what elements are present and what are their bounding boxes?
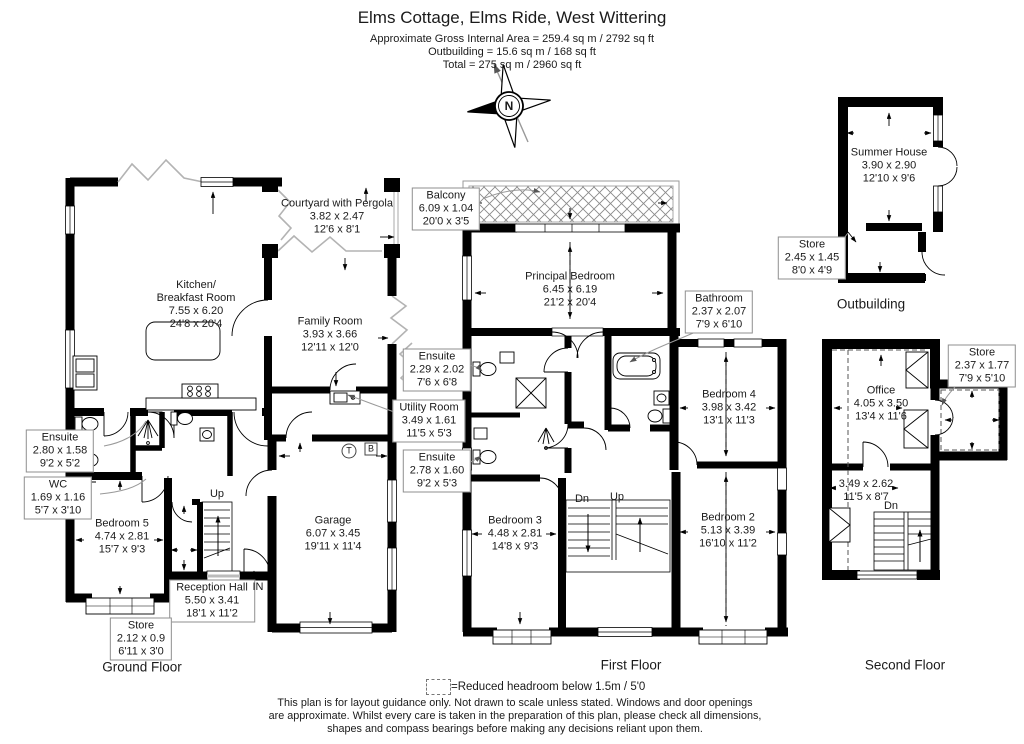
reduced-headroom-legend: =Reduced headroom below 1.5m / 5'0 <box>451 681 645 693</box>
reduced-headroom-swatch <box>426 679 451 695</box>
balcony-hatch <box>469 186 673 222</box>
stairs-dn-label-second: Dn <box>884 500 898 512</box>
tank-symbol: T <box>342 444 357 459</box>
room-label-summer-house: Summer House 3.90 x 2.90 12'10 x 9'6 <box>851 147 927 186</box>
room-label-sf-store: Store 2.37 x 1.77 7'9 x 5'10 <box>948 345 1016 388</box>
disclaimer-line-3: shapes and compass bearings before makin… <box>327 723 703 736</box>
room-label-family-room: Family Room 3.93 x 3.66 12'11 x 12'0 <box>298 316 363 355</box>
outbuilding-drawing <box>836 97 957 283</box>
second-floor-title: Second Floor <box>865 658 945 673</box>
outbuilding-title: Outbuilding <box>837 297 905 312</box>
room-label-bedroom5: Bedroom 5 4.74 x 2.81 15'7 x 9'3 <box>95 518 149 557</box>
stairs-up-label-first: Up <box>610 491 624 503</box>
second-stairs <box>874 512 935 570</box>
room-label-ob-store: Store 2.45 x 1.45 8'0 x 4'9 <box>778 237 846 280</box>
outbuilding-area-line: Outbuilding = 15.6 sq m / 168 sq ft <box>428 46 596 58</box>
room-label-bedroom2: Bedroom 2 5.13 x 3.39 16'10 x 11'2 <box>699 512 757 551</box>
disclaimer-line-2: are approximate. Whilst every care is ta… <box>269 710 762 723</box>
disclaimer-line-1: This plan is for layout guidance only. N… <box>277 697 752 710</box>
floorplan-page: Elms Cottage, Elms Ride, West Wittering … <box>0 0 1024 744</box>
room-label-gf-ensuite: Ensuite 2.80 x 1.58 9'2 x 5'2 <box>26 430 94 473</box>
total-area-line: Total = 275 sq m / 2960 sq ft <box>443 59 582 71</box>
room-label-garage: Garage 6.07 x 3.45 19'11 x 11'4 <box>304 515 361 554</box>
room-label-bedroom4: Bedroom 4 3.98 x 3.42 13'1 x 11'3 <box>702 389 756 428</box>
page-title: Elms Cottage, Elms Ride, West Wittering <box>358 8 667 28</box>
room-label-balcony: Balcony 6.09 x 1.04 20'0 x 3'5 <box>412 188 480 231</box>
compass-north-label: N <box>505 99 514 113</box>
ground-stairs <box>202 502 232 576</box>
room-label-bathroom: Bathroom 2.37 x 2.07 7'9 x 6'10 <box>685 291 753 334</box>
room-label-wc: WC 1.69 x 1.16 5'7 x 3'10 <box>24 477 92 520</box>
boiler-symbol: B <box>365 443 378 456</box>
entrance-in-label: IN <box>253 581 264 593</box>
ground-floor-title: Ground Floor <box>102 660 182 675</box>
room-label-courtyard: Courtyard with Pergola 3.82 x 2.47 12'6 … <box>281 198 393 237</box>
gross-area-line: Approximate Gross Internal Area = 259.4 … <box>370 33 654 45</box>
ground-bathroom-fixtures <box>75 412 214 467</box>
room-label-office: Office 4.05 x 3.50 13'4 x 11'6 <box>854 385 908 424</box>
room-label-gf-store: Store 2.12 x 0.9 6'11 x 3'0 <box>110 618 172 661</box>
room-label-principal-bedroom: Principal Bedroom 6.45 x 6.19 21'2 x 20'… <box>525 271 615 310</box>
room-label-utility: Utility Room 3.49 x 1.61 11'5 x 5'3 <box>392 400 465 443</box>
room-label-ff-ensuite1: Ensuite 2.29 x 2.02 7'6 x 6'8 <box>403 349 471 392</box>
room-label-bedroom3: Bedroom 3 4.48 x 2.81 14'8 x 9'3 <box>488 515 542 554</box>
first-floor-title: First Floor <box>601 658 662 673</box>
first-stairs <box>566 500 670 572</box>
stairs-up-label-ground: Up <box>210 488 224 500</box>
room-label-kitchen: Kitchen/ Breakfast Room 7.55 x 6.20 24'8… <box>157 279 236 331</box>
room-label-ff-ensuite2: Ensuite 2.78 x 1.60 9'2 x 5'3 <box>403 450 471 493</box>
room-label-reception-hall: Reception Hall 5.50 x 3.41 18'1 x 11'2 <box>169 580 255 623</box>
stairs-dn-label-first: Dn <box>575 493 589 505</box>
